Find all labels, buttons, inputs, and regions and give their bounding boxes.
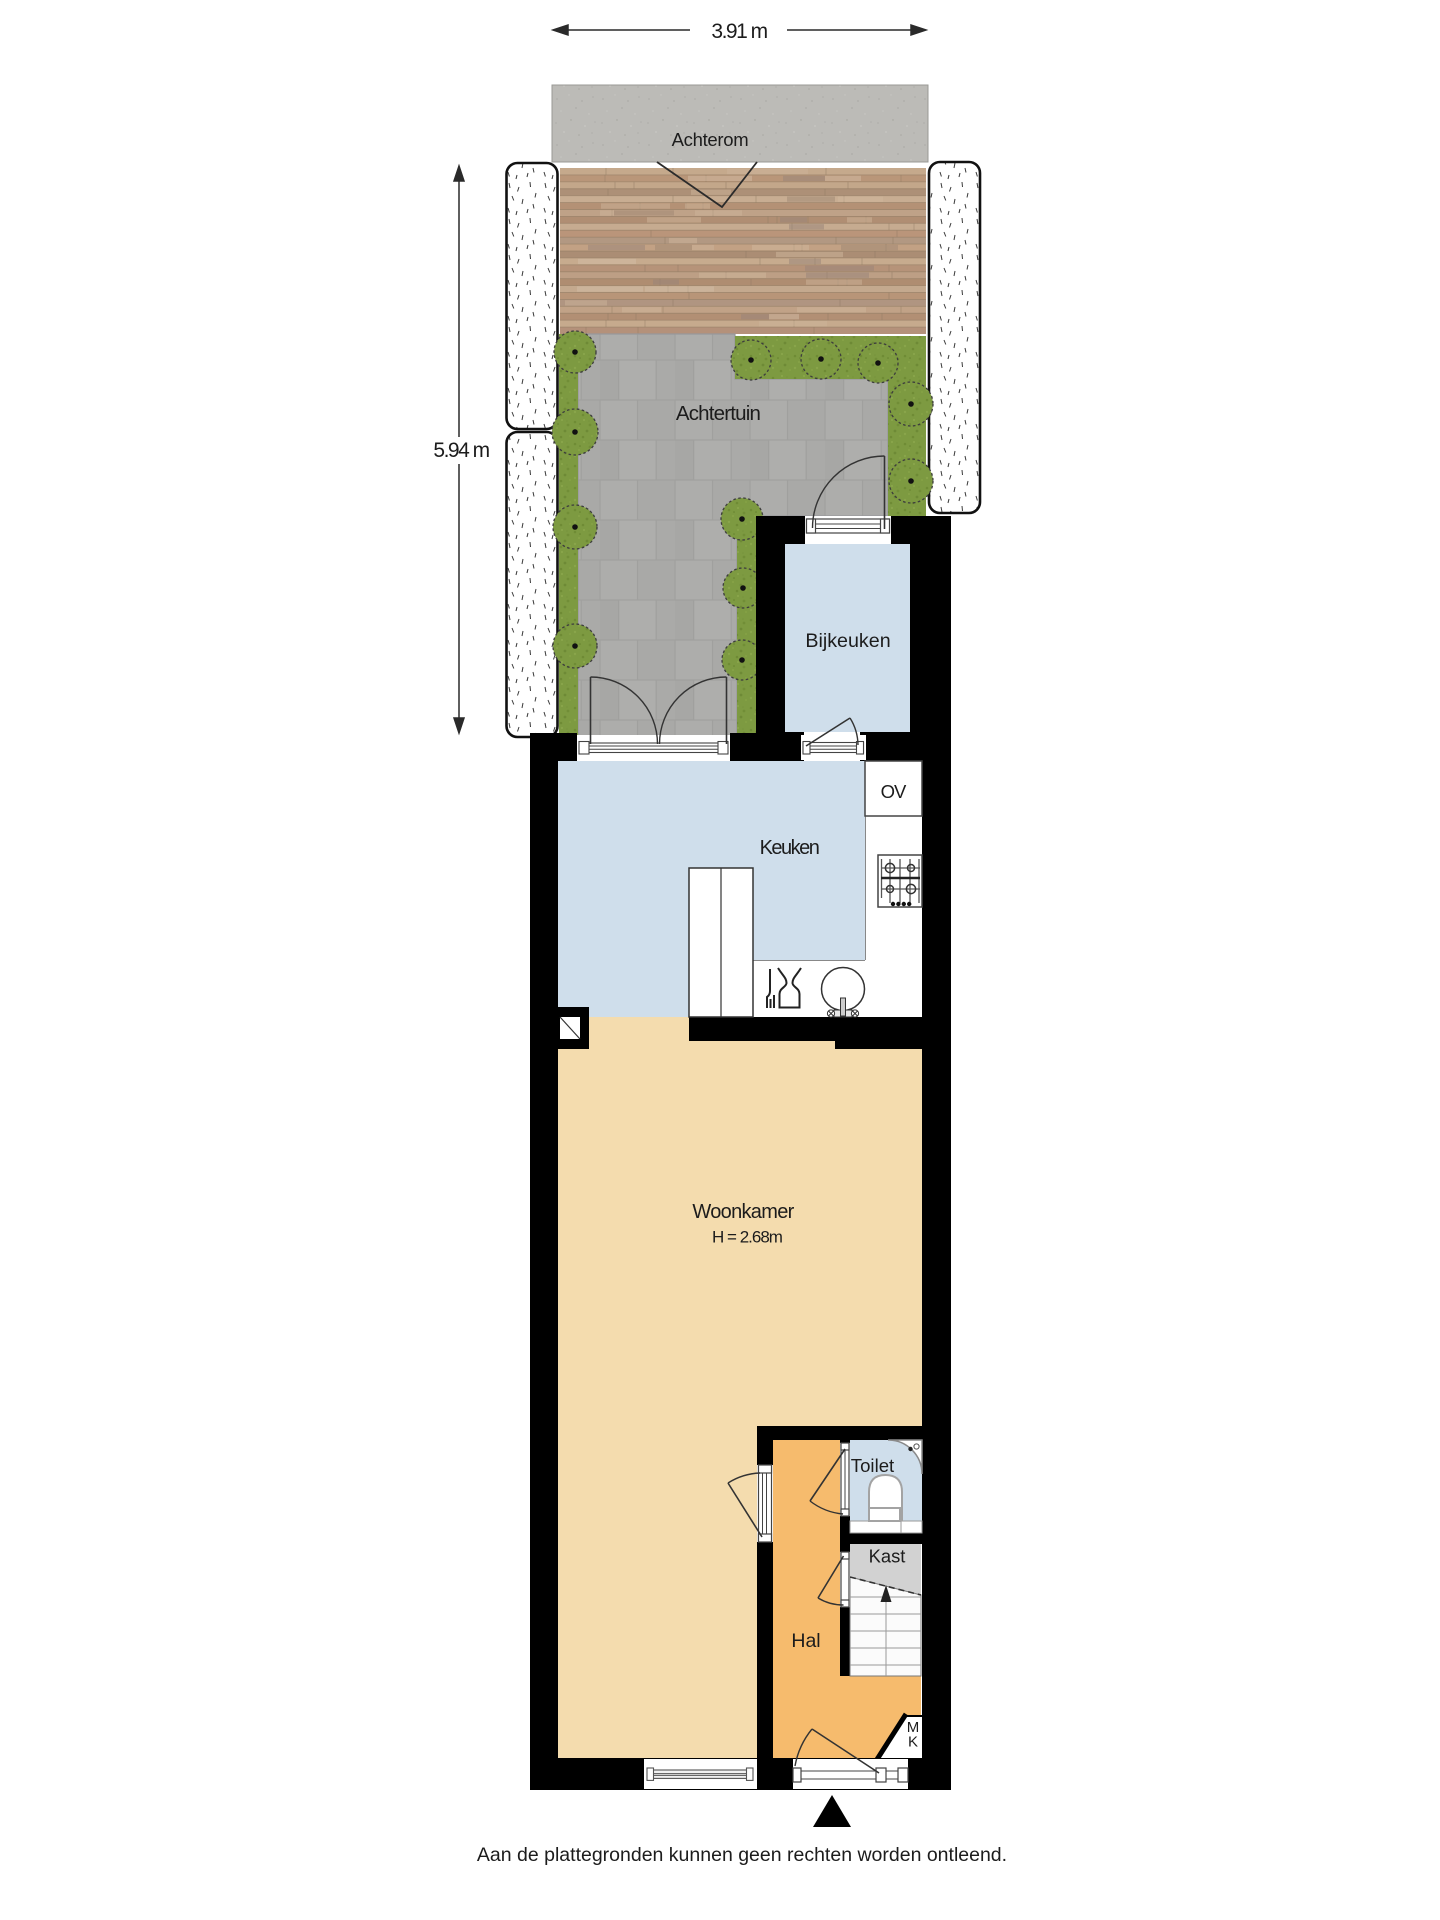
svg-text:Hal: Hal bbox=[791, 1630, 820, 1652]
svg-text:Achterom: Achterom bbox=[672, 129, 749, 150]
svg-text:Aan de plattegronden kunnen ge: Aan de plattegronden kunnen geen rechten… bbox=[477, 1844, 1007, 1866]
svg-text:Keuken: Keuken bbox=[760, 837, 819, 859]
svg-text:Bijkeuken: Bijkeuken bbox=[805, 630, 890, 652]
svg-text:OV: OV bbox=[881, 781, 907, 802]
svg-text:H = 2.68m: H = 2.68m bbox=[712, 1228, 783, 1247]
svg-text:K: K bbox=[908, 1734, 918, 1751]
svg-text:Kast: Kast bbox=[869, 1546, 906, 1567]
svg-text:Achtertuin: Achtertuin bbox=[676, 402, 761, 425]
svg-text:5.94 m: 5.94 m bbox=[433, 439, 489, 462]
svg-text:Toilet: Toilet bbox=[851, 1455, 895, 1476]
svg-text:3.91 m: 3.91 m bbox=[711, 20, 767, 43]
svg-text:Woonkamer: Woonkamer bbox=[692, 1201, 794, 1223]
